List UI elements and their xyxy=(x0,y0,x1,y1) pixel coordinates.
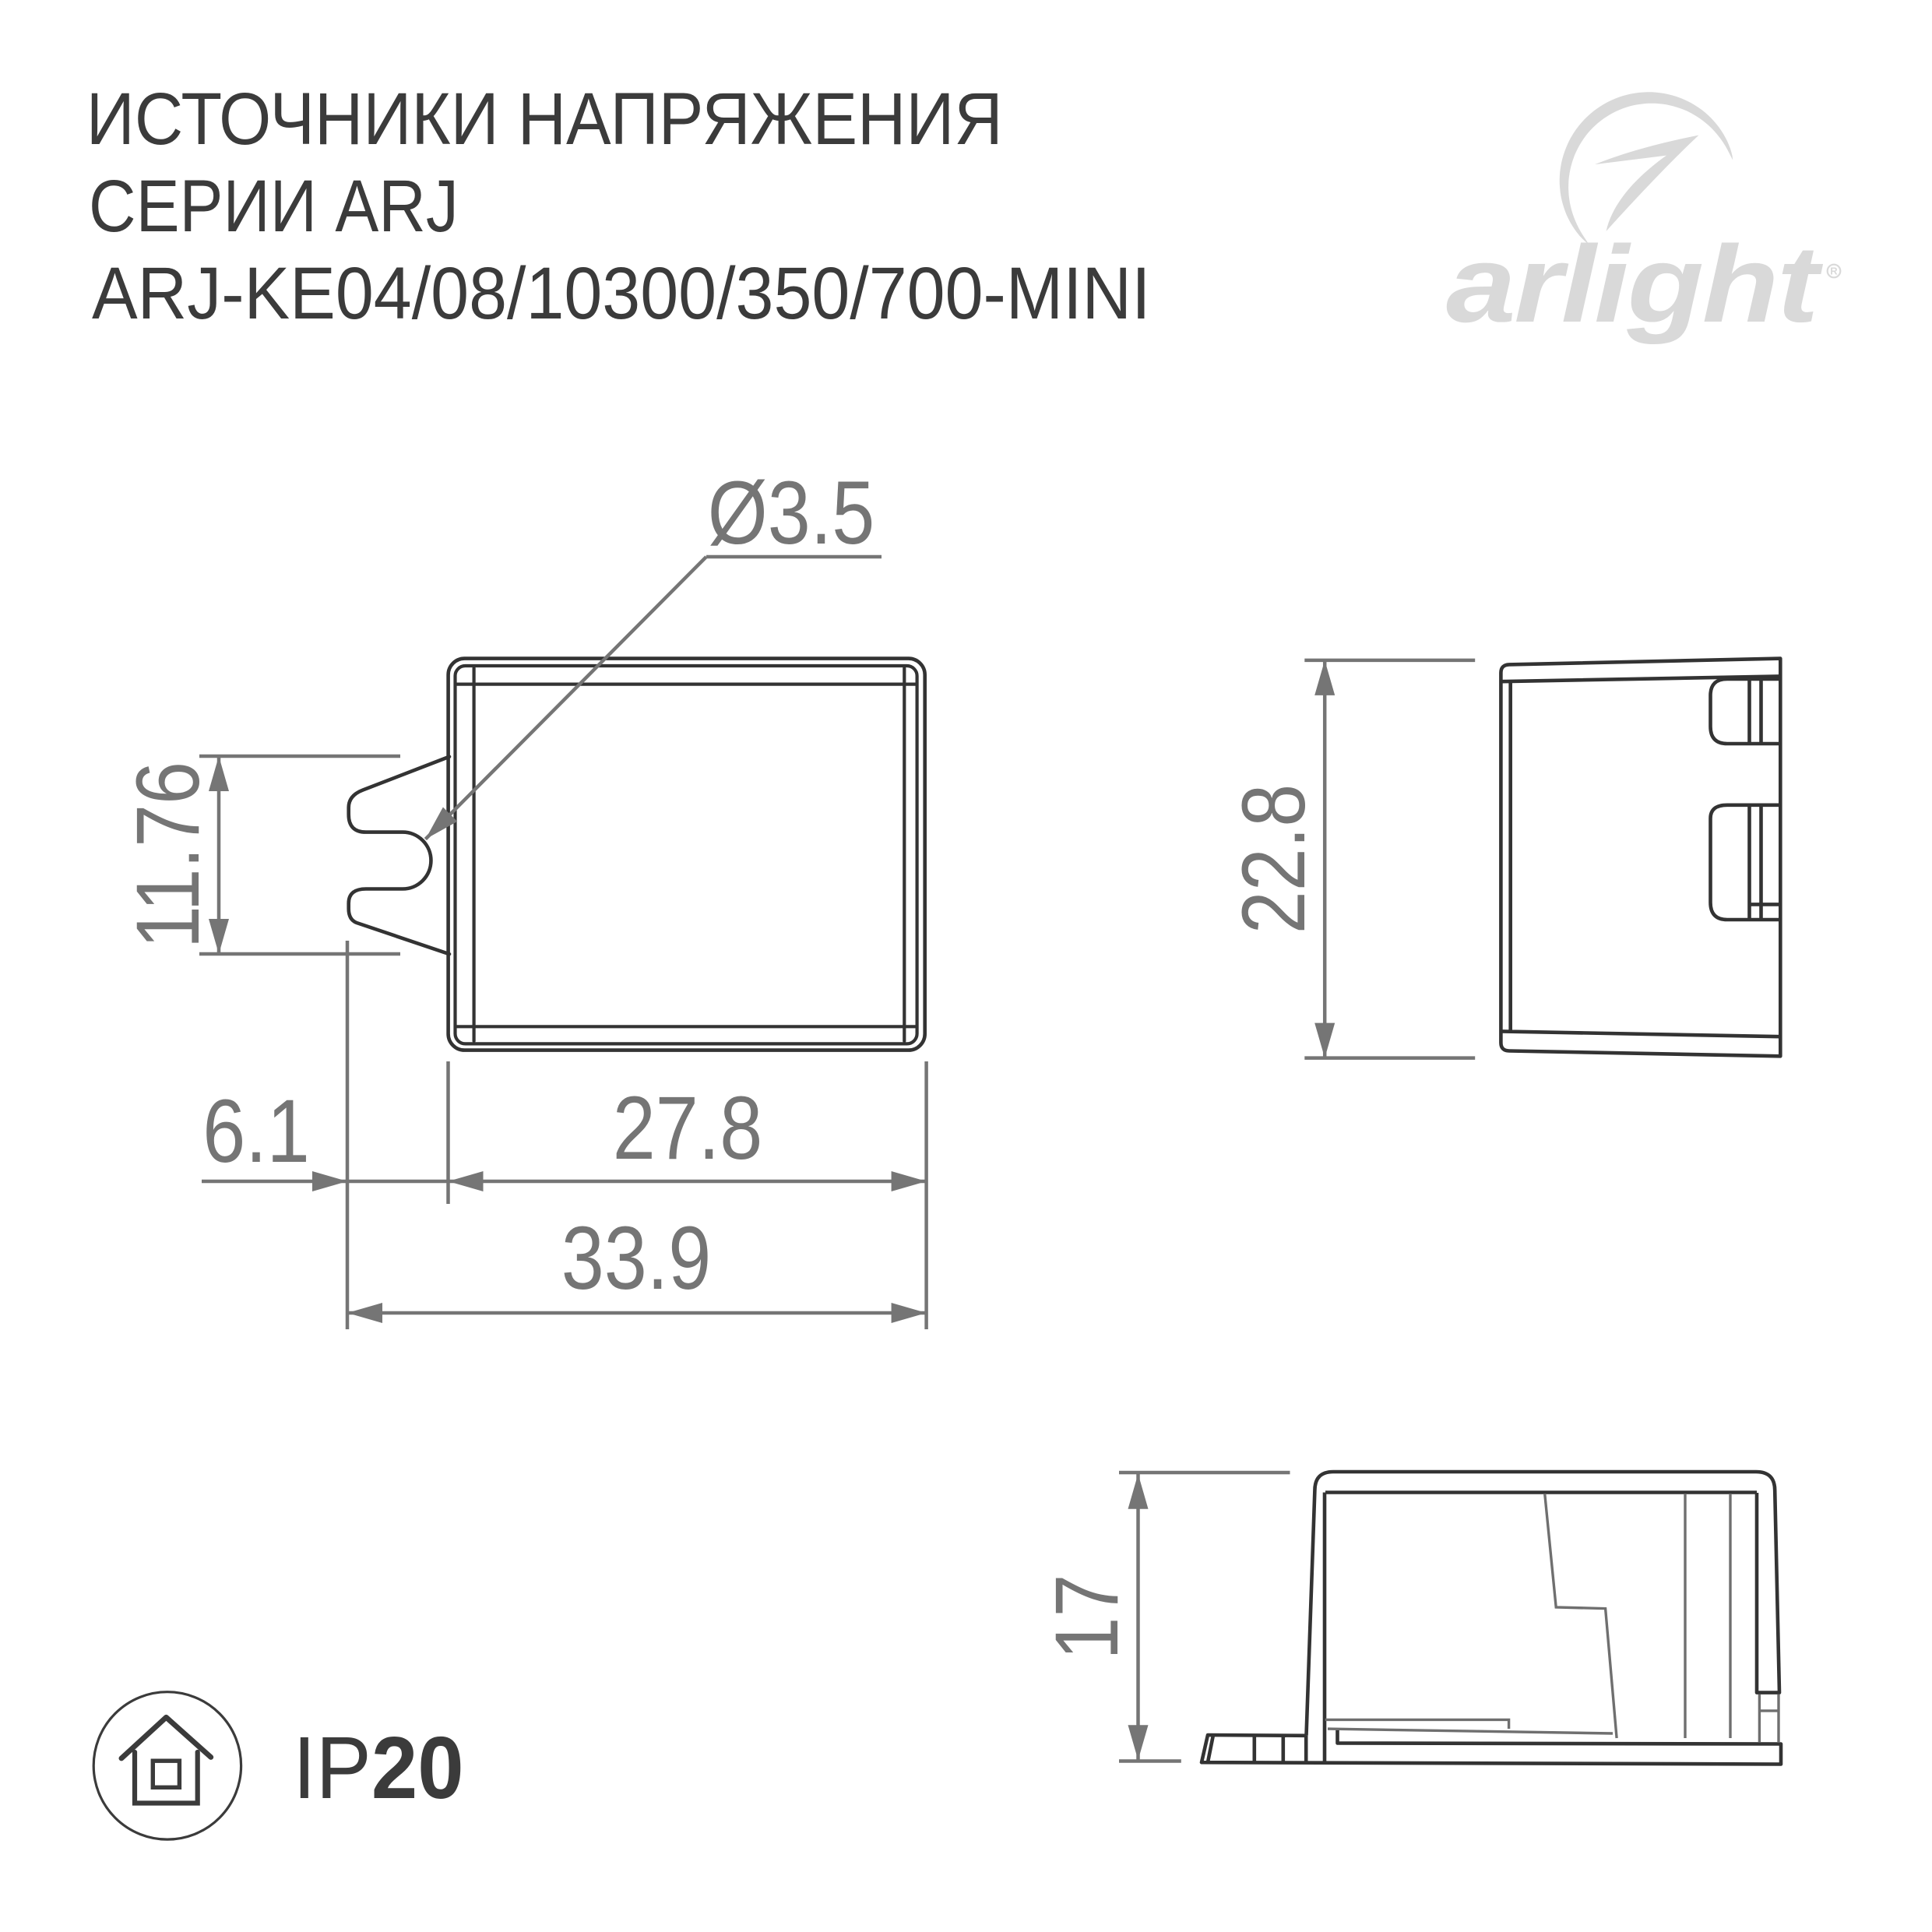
svg-text:6.1: 6.1 xyxy=(202,1081,309,1181)
svg-text:Ø3.5: Ø3.5 xyxy=(708,463,875,563)
svg-text:33.9: 33.9 xyxy=(561,1208,711,1308)
svg-text:11.76: 11.76 xyxy=(118,762,218,948)
svg-text:22.8: 22.8 xyxy=(1223,784,1324,934)
svg-text:ARJ-KE04/08/10300/350/700-MINI: ARJ-KE04/08/10300/350/700-MINI xyxy=(92,252,1151,335)
svg-text:R: R xyxy=(1830,266,1838,277)
svg-text:arlight: arlight xyxy=(1446,223,1824,345)
svg-text:17: 17 xyxy=(1036,1574,1137,1659)
svg-text:СЕРИИ ARJ: СЕРИИ ARJ xyxy=(89,164,459,247)
svg-text:ИСТОЧНИКИ НАПРЯЖЕНИЯ: ИСТОЧНИКИ НАПРЯЖЕНИЯ xyxy=(86,78,1003,160)
svg-text:27.8: 27.8 xyxy=(613,1078,762,1178)
svg-text:IP20: IP20 xyxy=(293,1719,464,1817)
